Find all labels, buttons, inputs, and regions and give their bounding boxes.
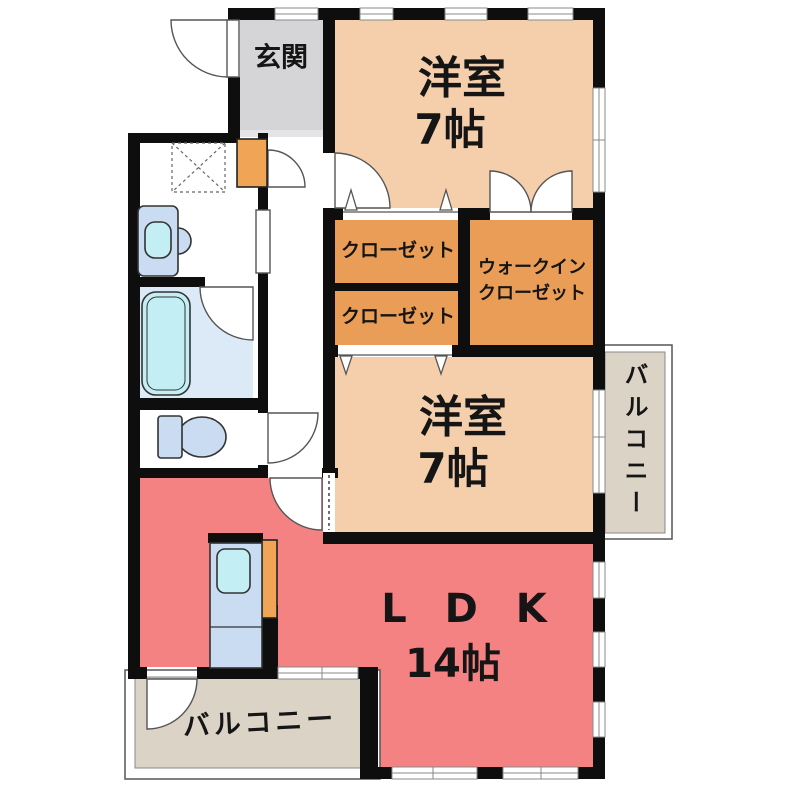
window-ldk-balcony	[278, 667, 358, 679]
washbasin-bowl	[145, 222, 171, 258]
bedroom-middle-name: 洋室	[419, 396, 507, 440]
window-ldk-bottom-2	[503, 767, 578, 779]
toilet	[158, 416, 226, 458]
window-ldk-right-1	[593, 562, 605, 598]
window-top-1	[275, 8, 318, 20]
balcony-bottom-label: バルコニー	[182, 705, 338, 740]
washing-machine-space	[172, 143, 225, 192]
washroom-sliding-door	[256, 210, 270, 273]
ldk-name: L D K	[381, 589, 559, 629]
window-top-3	[445, 8, 487, 20]
entrance-door-leaf	[227, 20, 239, 77]
closet-upper-label: クローゼット	[341, 242, 455, 261]
bedroom-middle-size: 7帖	[417, 448, 488, 490]
bedroom-top-size: 7帖	[414, 109, 485, 151]
kitchen-sink	[217, 549, 250, 593]
ldk-size: 14帖	[405, 644, 501, 684]
toilet-door-arc	[268, 413, 318, 463]
genkan-label: 玄関	[254, 45, 308, 72]
window-bedroom-top-right	[593, 88, 605, 192]
entrance-door-arc	[171, 20, 228, 77]
toilet-door-gap	[258, 413, 268, 465]
floorplan-graphic	[0, 0, 800, 800]
window-ldk-right-3	[593, 702, 605, 737]
walk-in-closet-label-1: ウォークイン	[478, 259, 586, 277]
refrigerator	[262, 540, 277, 618]
window-top-2	[360, 8, 393, 20]
bedroom-top-name: 洋室	[418, 57, 506, 101]
genkan-floor	[240, 20, 323, 130]
window-ldk-bottom-1	[392, 767, 477, 779]
floorplan: 玄関 洋室 7帖 クローゼット クローゼット ウォークイン クローゼット 洋室 …	[0, 0, 800, 800]
shoe-cabinet	[237, 139, 267, 187]
hall-door-arc	[268, 150, 305, 187]
closet-lower-label: クローゼット	[341, 308, 455, 327]
genkan-step	[240, 130, 323, 137]
window-bedroom-middle-right	[593, 390, 605, 493]
window-ldk-right-2	[593, 632, 605, 667]
bedroom-middle-sliding-door	[323, 473, 335, 532]
bathtub	[142, 292, 190, 395]
bedroom-top-door-gap	[323, 153, 335, 208]
walk-in-closet-label-2: クローゼット	[478, 285, 586, 303]
balcony-right-label: バルコニー	[622, 362, 646, 522]
window-top-4	[528, 8, 573, 20]
